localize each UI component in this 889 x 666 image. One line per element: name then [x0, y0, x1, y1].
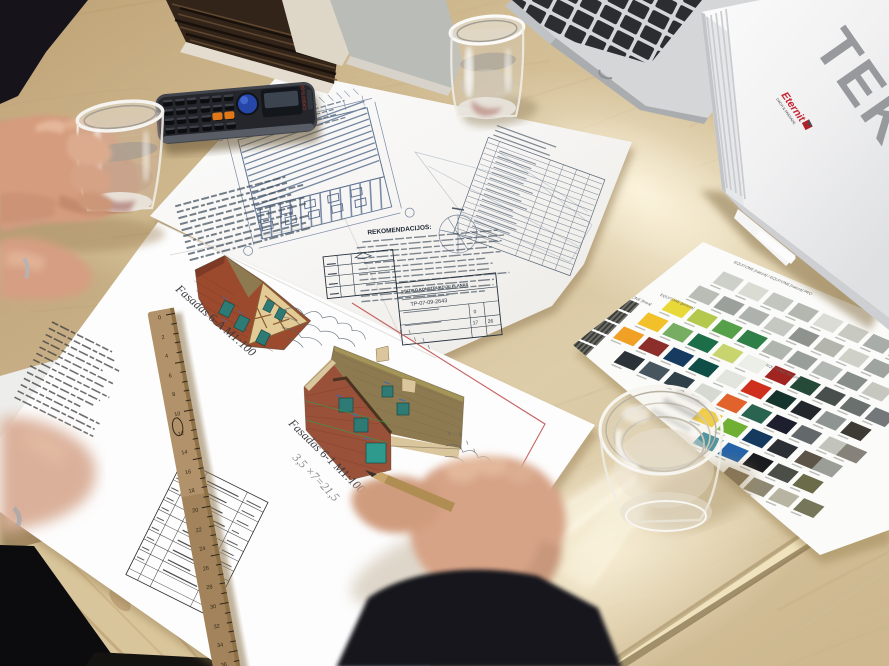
svg-text:20: 20	[192, 508, 199, 515]
svg-text:24: 24	[199, 546, 206, 553]
svg-text:17: 17	[472, 320, 478, 327]
svg-text:10: 10	[174, 411, 181, 418]
svg-text:22: 22	[195, 527, 202, 534]
svg-text:26: 26	[202, 566, 209, 573]
svg-text:36: 36	[220, 662, 227, 666]
svg-text:18: 18	[188, 488, 195, 495]
svg-text:34: 34	[217, 642, 224, 649]
svg-text:14: 14	[181, 449, 188, 456]
svg-text:26: 26	[487, 318, 493, 325]
svg-text:32: 32	[213, 624, 220, 631]
svg-text:30: 30	[210, 604, 217, 611]
svg-text:28: 28	[206, 584, 213, 591]
svg-text:16: 16	[185, 469, 192, 476]
